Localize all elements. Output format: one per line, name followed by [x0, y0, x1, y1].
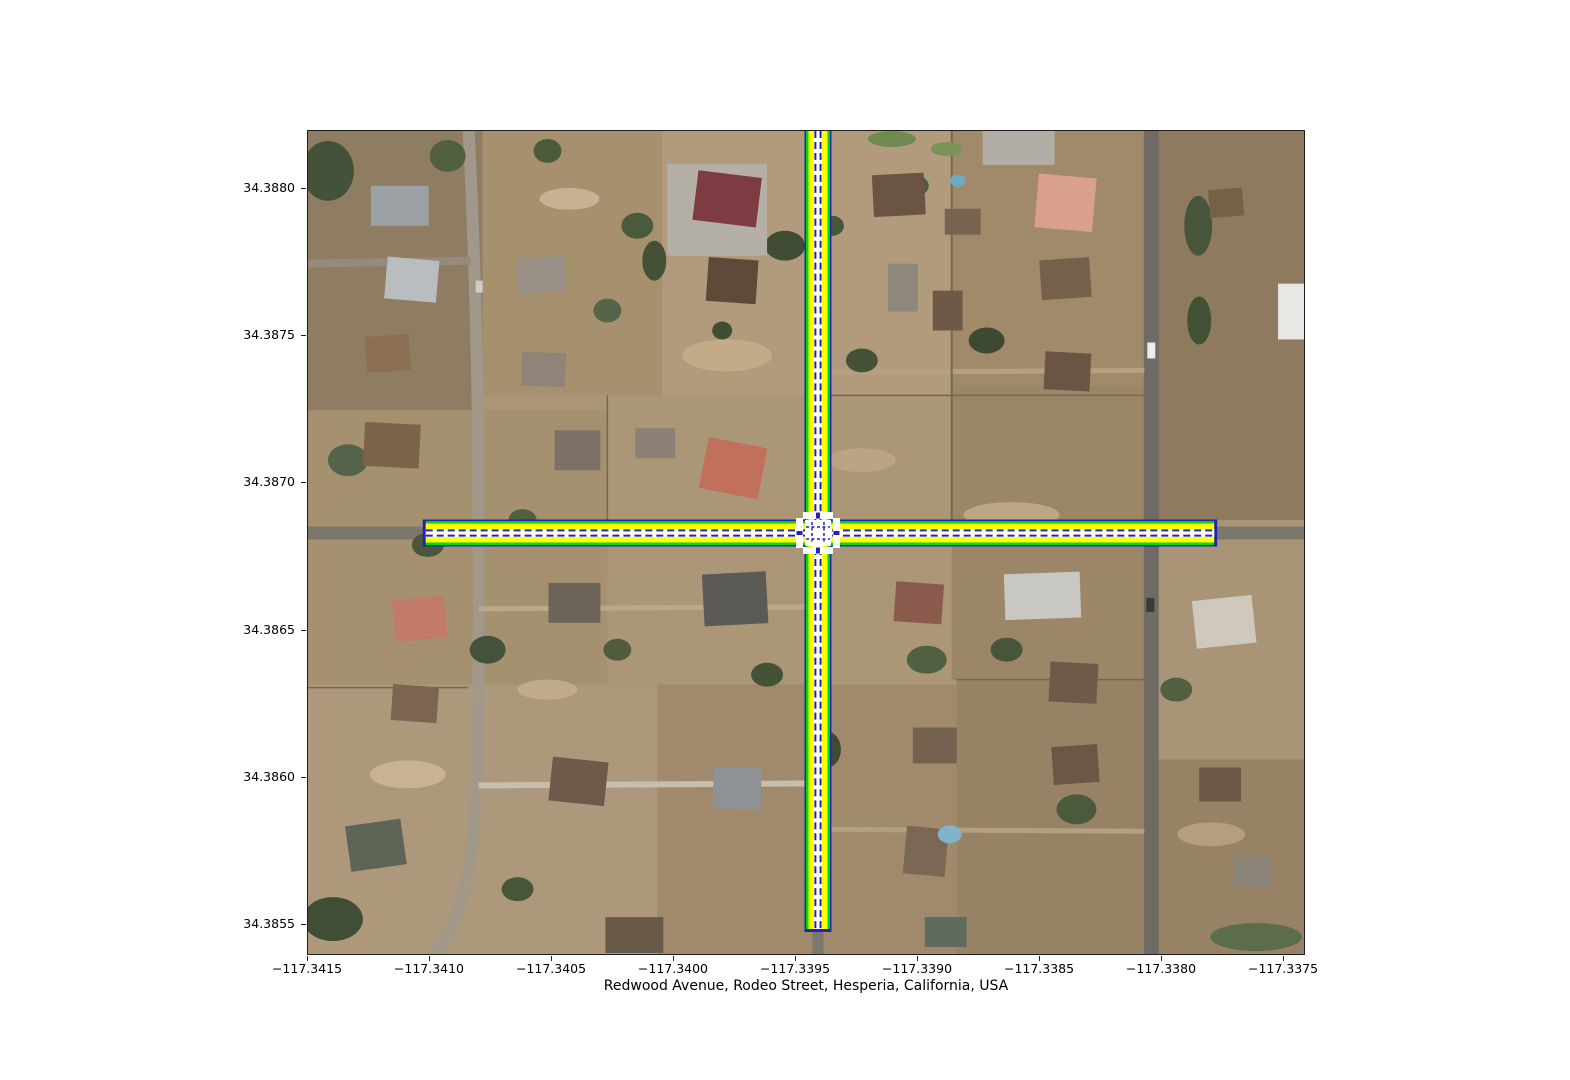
y-tick-mark [301, 630, 306, 631]
tree [534, 139, 562, 163]
aerial-map [308, 131, 1304, 954]
background-road [824, 370, 1144, 372]
tree [846, 348, 878, 372]
building [983, 131, 1055, 165]
building [1039, 257, 1092, 300]
building [392, 595, 448, 642]
y-tick-label: 34.3875 [180, 328, 295, 342]
building [692, 170, 761, 227]
building [548, 757, 608, 806]
pool [938, 825, 962, 843]
tree [969, 328, 1005, 354]
tree [1184, 196, 1212, 256]
junction-box [805, 520, 831, 546]
tree [712, 322, 732, 340]
building [517, 256, 566, 294]
map-axes [307, 130, 1305, 955]
x-tick-label: −117.3410 [374, 962, 484, 976]
y-tick-label: 34.3865 [180, 623, 295, 637]
tree [1210, 923, 1302, 951]
x-tick-mark [307, 956, 308, 961]
tree [603, 639, 631, 661]
x-tick-label: −117.3405 [496, 962, 606, 976]
stop-line-mark [797, 531, 803, 535]
building [1192, 595, 1257, 649]
building [371, 186, 429, 226]
x-tick-mark [795, 956, 796, 961]
tree [1160, 678, 1192, 702]
junction-marker [796, 512, 840, 554]
tree [868, 131, 916, 147]
background-road [479, 783, 812, 785]
building [1233, 856, 1271, 888]
building [872, 173, 926, 218]
building [384, 257, 439, 303]
x-tick-label: −117.3395 [740, 962, 850, 976]
x-tick-mark [1161, 956, 1162, 961]
x-tick-mark [551, 956, 552, 961]
building [893, 581, 944, 624]
building [913, 728, 957, 764]
tree [991, 638, 1023, 662]
stop-line-mark [816, 547, 820, 553]
y-tick-mark [301, 335, 306, 336]
building [345, 819, 407, 872]
building [888, 264, 918, 312]
x-tick-label: −117.3415 [252, 962, 362, 976]
tree [907, 646, 947, 674]
building [702, 571, 769, 626]
x-tick-label: −117.3380 [1106, 962, 1216, 976]
dirt-patch [370, 760, 446, 788]
vehicle [476, 281, 483, 293]
building [712, 767, 761, 811]
figure-title: Redwood Avenue, Rodeo Street, Hesperia, … [306, 978, 1306, 995]
matplotlib-figure: 34.388034.387534.387034.386534.386034.38… [0, 0, 1570, 1080]
y-tick-mark [301, 924, 306, 925]
y-tick-mark [301, 777, 306, 778]
x-tick-label: −117.3385 [984, 962, 1094, 976]
building [365, 334, 411, 373]
building [1004, 572, 1081, 621]
x-tick-mark [1039, 956, 1040, 961]
x-tick-mark [1283, 956, 1284, 961]
x-tick-label: −117.3400 [618, 962, 728, 976]
building [555, 430, 601, 470]
tree [502, 877, 534, 901]
building [521, 352, 566, 387]
building [1199, 767, 1241, 801]
x-tick-label: −117.3390 [862, 962, 972, 976]
dirt-patch [518, 680, 578, 700]
x-tick-label: −117.3375 [1228, 962, 1338, 976]
vehicle [1147, 342, 1155, 358]
building [945, 209, 981, 235]
x-tick-mark [673, 956, 674, 961]
y-tick-mark [301, 482, 306, 483]
tree [931, 142, 963, 156]
x-tick-mark [429, 956, 430, 961]
background-road [824, 829, 1144, 831]
building [925, 917, 967, 947]
building [549, 583, 601, 623]
tree [470, 636, 506, 664]
tree [1056, 794, 1096, 824]
building [605, 917, 663, 953]
building [1051, 744, 1099, 785]
tree [430, 140, 466, 172]
building [1208, 187, 1244, 218]
vehicle [1146, 598, 1154, 612]
dirt-patch [828, 448, 896, 472]
building [1048, 661, 1098, 703]
y-tick-label: 34.3860 [180, 770, 295, 784]
tree [1187, 297, 1211, 345]
building [933, 291, 963, 331]
building [1044, 351, 1092, 391]
stop-line-mark [833, 531, 839, 535]
building [1278, 284, 1304, 340]
building [706, 257, 759, 304]
stop-line-mark [816, 513, 820, 519]
terrain-patch [483, 131, 663, 395]
y-tick-mark [301, 188, 306, 189]
y-tick-label: 34.3870 [180, 475, 295, 489]
y-tick-label: 34.3880 [180, 181, 295, 195]
tree [642, 241, 666, 281]
pool [950, 175, 966, 187]
y-tick-label: 34.3855 [180, 917, 295, 931]
building [1034, 173, 1096, 232]
tree [593, 299, 621, 323]
tree [765, 231, 805, 261]
building [363, 422, 421, 469]
x-tick-mark [917, 956, 918, 961]
tree [751, 663, 783, 687]
building [391, 684, 439, 723]
building [635, 428, 675, 458]
tree [621, 213, 653, 239]
tree [328, 444, 368, 476]
dirt-patch [540, 188, 600, 210]
dirt-patch [682, 339, 772, 371]
dirt-patch [1177, 822, 1245, 846]
